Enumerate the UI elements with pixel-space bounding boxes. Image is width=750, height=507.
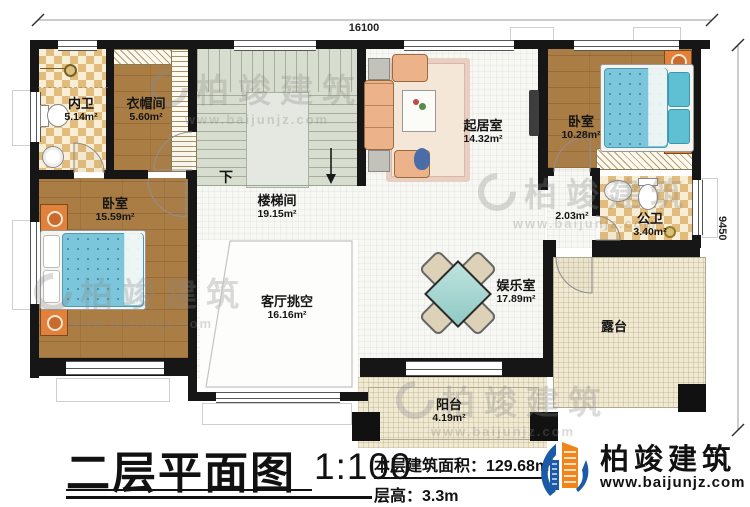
floor-plan-canvas: 下 bbox=[0, 0, 750, 507]
room-label-hallway: 2.03m² bbox=[546, 211, 598, 223]
room-label-void: 客厅挑空16.16m² bbox=[249, 295, 325, 321]
side-table bbox=[368, 58, 390, 80]
wall-terrace-top-a bbox=[543, 240, 556, 257]
wall-stairhall-left-b bbox=[188, 170, 197, 401]
window bbox=[216, 392, 340, 403]
pillow bbox=[668, 109, 690, 144]
wall-bedroomR-stub-b bbox=[590, 168, 600, 176]
flower-decor bbox=[413, 99, 419, 105]
wall-left bbox=[30, 40, 39, 378]
brand-name: 柏竣建筑 bbox=[600, 445, 745, 475]
brand-logo: 柏竣建筑 www.baijunjz.com bbox=[534, 436, 745, 500]
window-sill bbox=[12, 90, 31, 146]
tv-panel bbox=[529, 90, 539, 136]
dimension-width: 16100 bbox=[342, 22, 386, 34]
room-label-bedroom-right: 卧室10.28m² bbox=[549, 115, 613, 141]
wall-stairhall-left-a bbox=[188, 40, 197, 132]
stair-landing bbox=[246, 92, 309, 188]
window bbox=[692, 180, 703, 235]
brand-website: www.baijunjz.com bbox=[600, 475, 745, 491]
wall-bedroomR-stub-a bbox=[548, 168, 554, 176]
room-label-bedroom-left: 卧室15.59m² bbox=[80, 197, 150, 223]
room-label-cloakroom: 衣帽间5.60m² bbox=[111, 97, 181, 123]
pillow bbox=[43, 270, 60, 303]
window-sill bbox=[202, 403, 352, 425]
title-underline-long bbox=[66, 496, 372, 499]
floor-area-text: 本层建筑面积：129.68m² bbox=[374, 452, 555, 476]
side-table bbox=[368, 150, 390, 172]
sink bbox=[604, 180, 632, 202]
nightstand bbox=[40, 308, 68, 336]
room-label-bathroom2: 公卫3.40m² bbox=[618, 212, 682, 238]
balcony-door-window bbox=[406, 361, 502, 376]
nightstand bbox=[40, 204, 68, 232]
pillar bbox=[352, 412, 380, 441]
shower-head bbox=[64, 64, 77, 77]
flower-decor bbox=[419, 103, 426, 110]
wall-terrace-left bbox=[543, 248, 553, 377]
window bbox=[58, 40, 97, 51]
coffee-table bbox=[402, 90, 436, 132]
bed-sheet-fold bbox=[124, 233, 143, 305]
window bbox=[404, 40, 514, 51]
closet-hatch bbox=[113, 49, 172, 65]
stair-down-label: 下 bbox=[214, 170, 238, 186]
stair-flight-right bbox=[307, 92, 357, 186]
room-label-balcony: 阳台4.19m² bbox=[421, 398, 477, 424]
wall-terrace-top-b bbox=[592, 240, 700, 257]
floor-height-text: 层高：3.3m bbox=[374, 482, 458, 506]
titleblock-divider bbox=[374, 477, 544, 479]
window bbox=[234, 40, 316, 51]
window-sill bbox=[56, 378, 170, 402]
room-label-terrace: 露台 bbox=[592, 320, 636, 335]
bed-sheet-fold bbox=[648, 68, 667, 146]
plan-title: 二层平面图 bbox=[66, 437, 296, 501]
shower-arm bbox=[40, 68, 66, 69]
window bbox=[66, 361, 164, 375]
pillar bbox=[678, 384, 706, 412]
shower-partition bbox=[38, 87, 108, 88]
person-figure bbox=[414, 148, 430, 170]
room-label-gameroom: 娱乐室17.89m² bbox=[480, 279, 552, 305]
pillow bbox=[43, 235, 60, 268]
room-label-bathroom1: 内卫5.14m² bbox=[51, 97, 111, 123]
hallway-floor bbox=[547, 168, 596, 248]
pillow bbox=[668, 72, 690, 107]
wall-living-bedroom bbox=[538, 40, 548, 190]
window-sill bbox=[12, 220, 31, 310]
sofa bbox=[364, 80, 394, 150]
armchair bbox=[392, 54, 428, 82]
stair-winders bbox=[197, 48, 357, 92]
room-label-living: 起居室14.32m² bbox=[451, 119, 515, 145]
staircase bbox=[197, 48, 357, 186]
wall-bath-bottom-a bbox=[30, 170, 74, 179]
dimension-height: 9450 bbox=[716, 216, 728, 240]
toilet-bowl bbox=[638, 184, 658, 210]
brand-logo-icon bbox=[534, 436, 594, 500]
wall-bath2-left bbox=[592, 176, 600, 216]
wall-bath-bottom-b bbox=[104, 170, 148, 179]
title-underline bbox=[66, 489, 312, 491]
room-label-stairwell: 楼梯间19.15m² bbox=[239, 194, 315, 220]
sink bbox=[42, 146, 64, 168]
